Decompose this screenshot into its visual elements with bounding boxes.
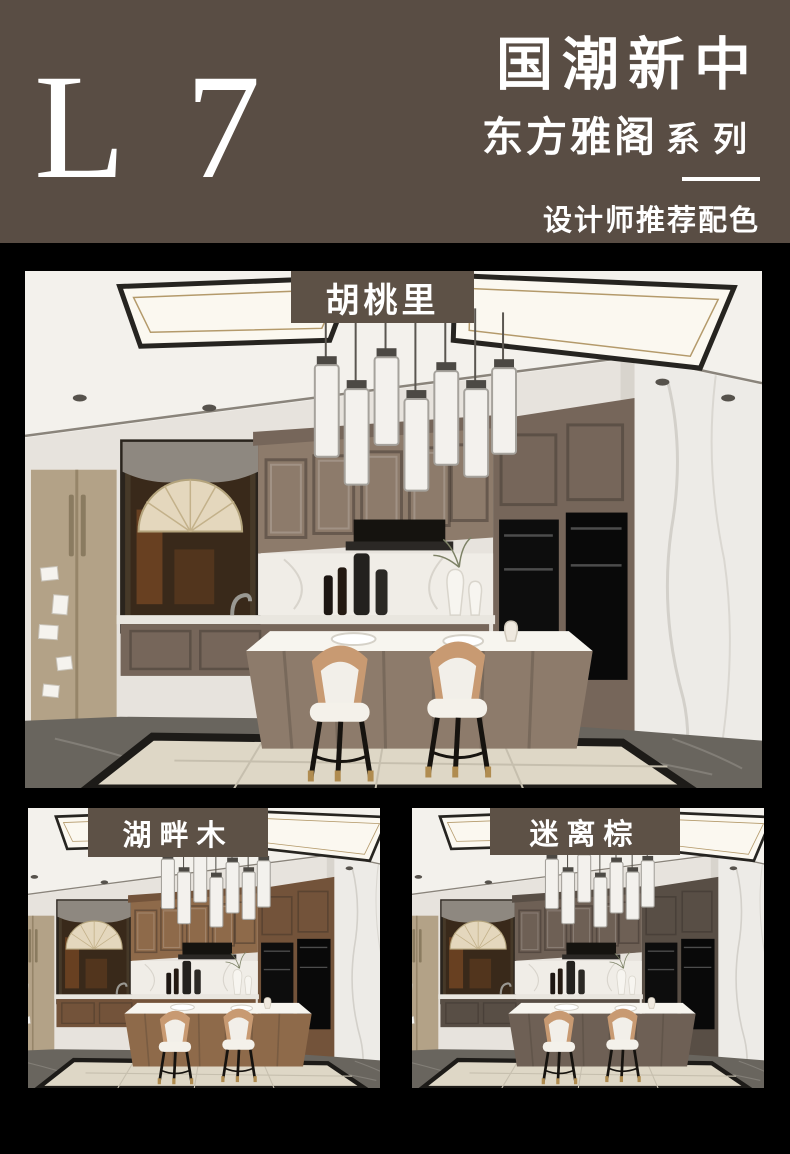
header-banner: L 7 国潮新中 东方雅阁系列 设计师推荐配色 <box>0 0 790 243</box>
range-hood <box>178 943 236 960</box>
kitchen-render-illustration <box>25 271 762 788</box>
color-badge-main: 胡桃里 <box>291 271 474 323</box>
window-fan-blind <box>442 901 515 1003</box>
window-fan-blind <box>58 901 131 1003</box>
tagline: 设计师推荐配色 <box>482 197 760 239</box>
range-hood <box>562 943 620 960</box>
color-badge-bottom-left: 湖畔木 <box>88 808 268 857</box>
model-code: L 7 <box>34 52 275 202</box>
kitchen-photo-bottom-right: 迷离棕 <box>412 808 764 1088</box>
range-hood <box>346 520 454 551</box>
collection-title: 国潮新中 <box>482 34 760 97</box>
island <box>124 998 311 1067</box>
kitchen-photo-main: 胡桃里 <box>25 271 762 788</box>
island <box>508 998 695 1067</box>
divider-rule <box>682 177 760 181</box>
series-name-suffix: 系列 <box>666 121 760 159</box>
series-name-main: 东方雅阁 <box>482 114 658 160</box>
window-fan-blind <box>123 442 258 631</box>
kitchen-photo-bottom-left: 湖畔木 <box>28 808 380 1088</box>
color-badge-bottom-right: 迷离棕 <box>490 808 680 855</box>
header-text-block: 国潮新中 东方雅阁系列 设计师推荐配色 <box>482 34 760 239</box>
island <box>246 621 593 748</box>
series-name: 东方雅阁系列 <box>482 103 760 163</box>
